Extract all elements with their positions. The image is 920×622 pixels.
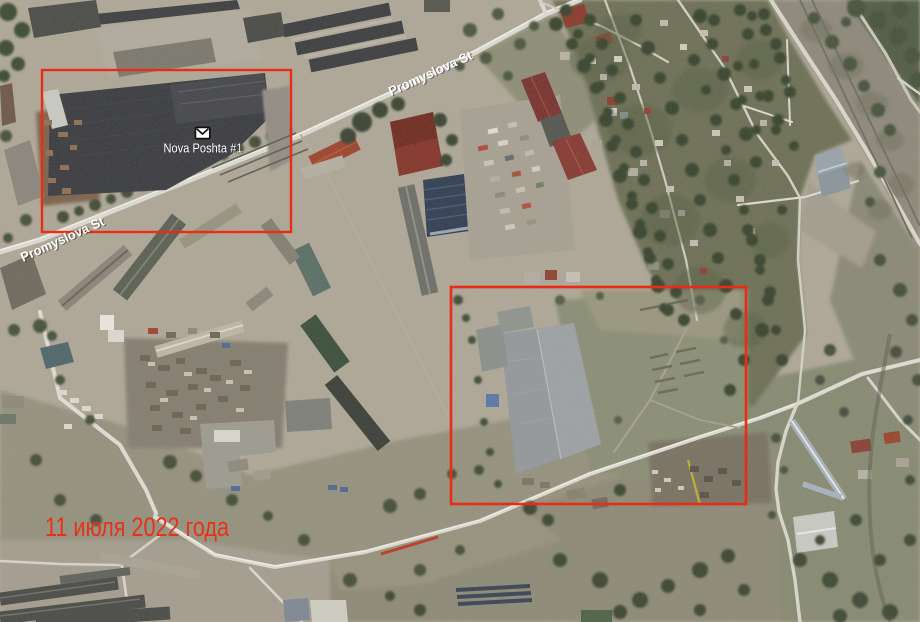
svg-text:Nova Poshta #1: Nova Poshta #1 <box>164 142 243 156</box>
svg-text:11 июля 2022 года: 11 июля 2022 года <box>45 512 230 542</box>
